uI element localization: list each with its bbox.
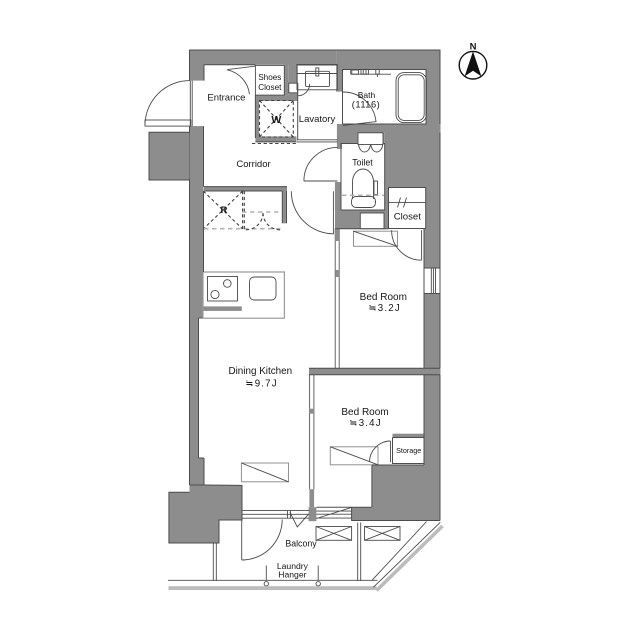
svg-text:(1116): (1116) xyxy=(352,100,381,110)
svg-text:W: W xyxy=(271,114,281,126)
svg-text:Toilet: Toilet xyxy=(352,157,373,167)
svg-text:Corridor: Corridor xyxy=(236,159,270,170)
svg-text:Storage: Storage xyxy=(396,446,421,455)
svg-text:Closet: Closet xyxy=(394,212,422,223)
svg-text:≒3.4J: ≒3.4J xyxy=(349,418,381,429)
svg-text:Balcony: Balcony xyxy=(285,539,317,549)
svg-text:≒3.2J: ≒3.2J xyxy=(368,303,400,314)
svg-text:R: R xyxy=(221,205,228,216)
svg-text:Shoes: Shoes xyxy=(258,73,281,82)
svg-text:N: N xyxy=(470,42,477,53)
svg-text:Dining Kitchen: Dining Kitchen xyxy=(228,366,292,377)
svg-text:≒9.7J: ≒9.7J xyxy=(245,378,277,389)
svg-text:Closet: Closet xyxy=(258,83,282,92)
svg-text:Bed Room: Bed Room xyxy=(341,407,388,418)
svg-text:Bed Room: Bed Room xyxy=(360,292,407,303)
svg-text:Hanger: Hanger xyxy=(278,569,306,579)
svg-text:Lavatory: Lavatory xyxy=(299,114,336,125)
svg-text:Entrance: Entrance xyxy=(207,92,245,103)
